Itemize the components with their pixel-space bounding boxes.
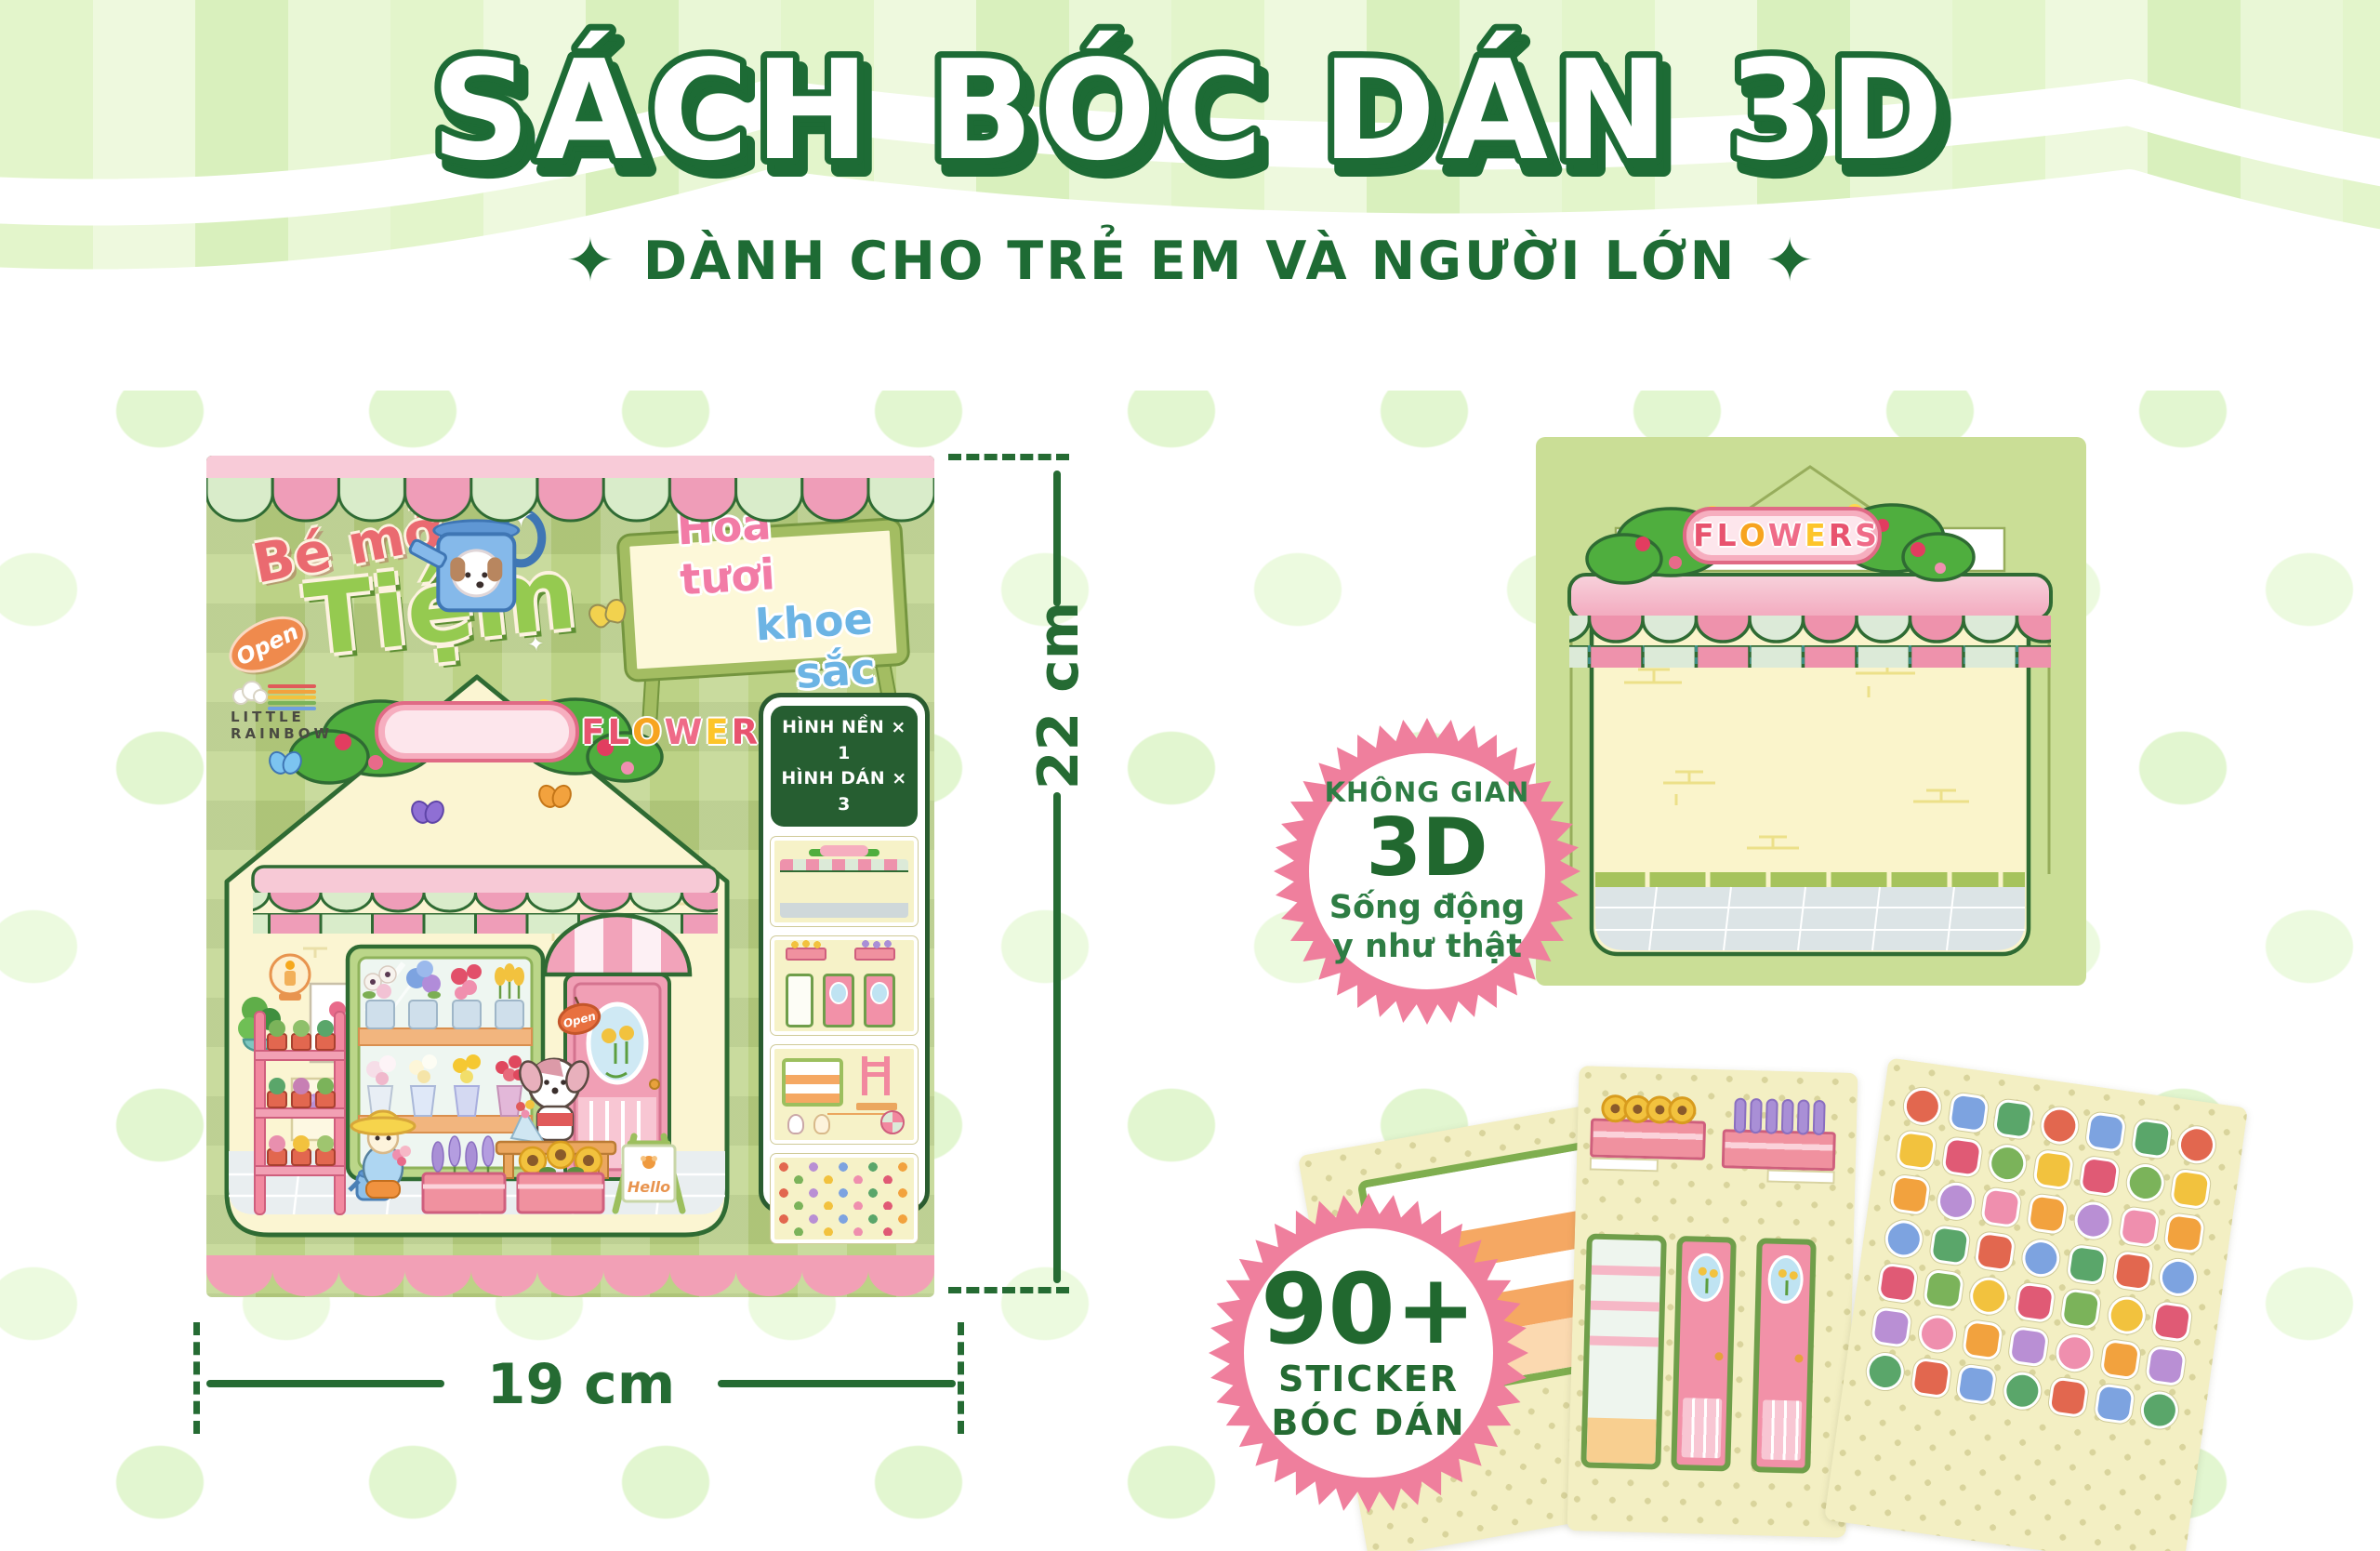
mini-sticker — [2030, 1196, 2065, 1231]
dim-width-dash-right — [958, 1322, 964, 1434]
shop-sign-flowers: FLOWERS — [591, 710, 775, 753]
flowers-letter: E — [705, 712, 728, 752]
sparkle-icon: ✦ — [565, 232, 615, 291]
flowers-letter: E — [1805, 517, 1826, 553]
mini-sticker — [2154, 1304, 2189, 1339]
mini-sticker — [1984, 1190, 2019, 1226]
thumb-ladder — [862, 1056, 890, 1095]
mini-sticker — [2109, 1297, 2144, 1332]
dim-height-line-bottom — [1053, 792, 1061, 1283]
cover-awning — [206, 456, 934, 523]
mini-sticker — [1898, 1133, 1934, 1168]
mini-sticker — [2149, 1348, 2184, 1384]
contents-strip: HÌNH NỀN × 1 HÌNH DÁN × 3 — [759, 693, 930, 1213]
mini-sticker — [2082, 1159, 2117, 1194]
mini-sticker — [1919, 1316, 1954, 1351]
backdrop-floor — [1595, 887, 2025, 950]
thumb-lavender-box — [854, 948, 895, 961]
door-sticker — [1671, 1236, 1737, 1472]
contents-line1: HÌNH NỀN × 1 — [774, 715, 914, 766]
shop-board: Hoa tươi khoe sắc — [619, 520, 908, 680]
publisher-name: LITTLE RAINBOW — [231, 709, 398, 742]
mini-sticker — [2167, 1215, 2202, 1251]
board-line2: khoe sắc — [661, 593, 882, 707]
mini-sticker — [1959, 1367, 1994, 1402]
dog-face-icon — [451, 549, 501, 597]
dog-eye — [465, 572, 470, 577]
dim-height-line-top — [1053, 471, 1061, 606]
flowers-letter: O — [1739, 517, 1765, 553]
badge-3d-space: KHÔNG GIAN 3D Sống động y như thật — [1274, 718, 1580, 1025]
mini-sticker — [2042, 1107, 2077, 1143]
dim-width-label: 19 cm — [487, 1352, 675, 1417]
mini-sticker — [2173, 1172, 2208, 1207]
mini-sticker — [1925, 1272, 1961, 1307]
mini-sticker — [2023, 1240, 2058, 1276]
badge-sticker-count: 90+ STICKER BÓC DÁN — [1209, 1193, 1528, 1513]
dim-width-line-left — [206, 1380, 444, 1387]
dog-nose — [476, 581, 483, 588]
preview-sheet2-thumb — [771, 1045, 918, 1144]
dim-width-line-right — [718, 1380, 956, 1387]
sparkle-icon: ✦ — [526, 634, 546, 656]
backdrop-panel: FLOWERS — [1536, 437, 2086, 986]
flowers-letter: F — [581, 712, 604, 752]
preview-backdrop-thumb — [771, 837, 918, 926]
thumb-door — [786, 974, 813, 1027]
sunflower-planter — [518, 1142, 603, 1213]
hello-easel: Hello — [615, 1136, 682, 1211]
mini-sticker — [1944, 1139, 1979, 1174]
door-knob — [650, 1080, 659, 1089]
mini-sticker — [1913, 1360, 1949, 1396]
open-badge: Open — [220, 605, 315, 684]
mini-sticker — [2004, 1373, 2040, 1409]
sticker-sheet-2 — [1567, 1066, 1858, 1538]
badge-3d-line4: y như thật — [1332, 927, 1522, 966]
preview-sheet1-thumb — [771, 936, 918, 1035]
badge-90-line2: BÓC DÁN — [1271, 1401, 1465, 1446]
mini-sticker — [1873, 1309, 1909, 1345]
mini-sticker — [2056, 1335, 2092, 1371]
flowers-letter: W — [665, 712, 703, 752]
mini-sticker — [1977, 1234, 2013, 1269]
dog-eye — [482, 572, 487, 577]
thumb-floor — [780, 903, 908, 918]
mini-sticker — [2121, 1209, 2156, 1244]
flowers-letter: R — [1829, 517, 1852, 553]
board-frame: Hoa tươi khoe sắc — [619, 520, 908, 680]
badge-90-line1: STICKER — [1278, 1358, 1459, 1402]
backdrop-sign-flowers: FLOWERS — [1696, 515, 1874, 554]
thumb-character — [787, 1114, 804, 1134]
mini-sticker — [2011, 1329, 2046, 1364]
mini-sticker — [2036, 1152, 2071, 1187]
mini-sticker — [1905, 1089, 1940, 1124]
mini-sticker — [1996, 1101, 2031, 1136]
shop-awning-top — [253, 867, 718, 895]
page-title-text: SÁCH BÓC DÁN 3D — [431, 30, 1950, 191]
badge-3d-inner: KHÔNG GIAN 3D Sống động y như thật — [1309, 753, 1545, 989]
mini-sticker — [1892, 1177, 1927, 1213]
thumb-sunflower-box — [786, 948, 826, 961]
mini-sticker — [2063, 1291, 2098, 1326]
badge-90-count: 90+ — [1261, 1261, 1476, 1358]
thumb-door — [823, 974, 854, 1027]
badge-3d-line3: Sống động — [1329, 888, 1525, 927]
mini-sticker — [2088, 1114, 2123, 1149]
poster-page: SÁCH BÓC DÁN 3D SÁCH BÓC DÁN 3D ✦ DÀNH C… — [0, 0, 2380, 1551]
lavender-box-sticker — [1721, 1097, 1836, 1184]
door-sticker — [1751, 1238, 1817, 1474]
publisher-brand: LITTLE RAINBOW — [231, 681, 398, 742]
mini-sticker — [2102, 1342, 2137, 1377]
page-subtitle-text: DÀNH CHO TRẺ EM VÀ NGƯỜI LỚN — [643, 231, 1738, 292]
dim-width-dash-left — [193, 1322, 200, 1434]
backdrop-curb — [1595, 872, 2025, 887]
preview-sheet3-thumb — [771, 1154, 918, 1243]
mini-sticker — [1880, 1266, 1915, 1301]
sparkle-icon: ✦ — [1765, 232, 1815, 291]
cover-bottom-scallop — [206, 1255, 934, 1297]
mini-sticker — [2075, 1202, 2110, 1238]
page-title: SÁCH BÓC DÁN 3D SÁCH BÓC DÁN 3D — [400, 17, 1980, 203]
mini-sticker — [2134, 1120, 2169, 1156]
mini-sticker — [1971, 1279, 2006, 1314]
mini-sticker — [2115, 1253, 2150, 1289]
thumb-character — [813, 1114, 830, 1134]
dim-height-dash-bottom — [948, 1287, 1069, 1293]
page-subtitle: ✦ DÀNH CHO TRẺ EM VÀ NGƯỜI LỚN ✦ — [565, 231, 1815, 292]
contents-line2: HÌNH DÁN × 3 — [774, 766, 914, 817]
flowers-letter: S — [1855, 517, 1877, 553]
mini-sticker — [1938, 1184, 1974, 1219]
mini-sticker — [1868, 1354, 1903, 1389]
open-badge-label: Open — [232, 618, 303, 670]
thumb-sign — [820, 845, 868, 856]
mini-sticker — [1990, 1146, 2025, 1181]
badge-90-inner: 90+ STICKER BÓC DÁN — [1244, 1228, 1493, 1478]
cloud-icon — [232, 681, 270, 705]
mini-sticker — [1950, 1095, 1986, 1131]
mini-sticker — [1886, 1221, 1922, 1256]
thumb-awning — [780, 859, 908, 872]
dog-ear — [450, 557, 465, 581]
mini-sticker — [2017, 1285, 2053, 1320]
sticker-sheet-3 — [1824, 1057, 2248, 1551]
contents-badge: HÌNH NỀN × 1 HÌNH DÁN × 3 — [771, 706, 918, 827]
mini-sticker — [2179, 1127, 2215, 1162]
badge-3d-line2: 3D — [1366, 808, 1487, 888]
mini-sticker — [2050, 1380, 2085, 1415]
flowers-letter: L — [1717, 517, 1737, 553]
flowers-letter: W — [1768, 517, 1802, 553]
mini-sticker — [2142, 1392, 2177, 1427]
dim-height-label: 22 cm — [1026, 602, 1091, 789]
flowers-letter: O — [632, 712, 661, 752]
window-sticker — [1580, 1233, 1667, 1469]
mini-sticker — [2161, 1260, 2196, 1295]
rainbow-icon — [268, 684, 316, 712]
thumb-door — [864, 974, 895, 1027]
dim-height-dash-top — [948, 454, 1069, 460]
dog-ear — [487, 557, 502, 581]
mini-sticker — [2069, 1247, 2105, 1282]
thumb-bench — [856, 1103, 897, 1110]
flower-shop-illustration: Sale — [218, 668, 752, 1263]
thumb-ball — [880, 1110, 905, 1134]
product-cover: Bé mở Tiệm Open ✦ ✦ — [206, 456, 934, 1297]
svg-text:Hello: Hello — [628, 1178, 670, 1196]
mini-sticker — [2127, 1165, 2162, 1200]
mini-sticker — [1965, 1322, 2001, 1358]
flowers-letter: R — [732, 712, 759, 752]
thumb-window — [782, 1058, 843, 1107]
sunflower-box-sticker — [1590, 1094, 1707, 1173]
flowers-letter: L — [608, 712, 630, 752]
flowers-letter: F — [1693, 517, 1714, 553]
backdrop-awning-scallops — [1569, 616, 2051, 668]
mini-sticker — [2096, 1385, 2132, 1421]
mini-sticker — [1932, 1227, 1967, 1263]
window-shelf — [359, 1028, 532, 1045]
